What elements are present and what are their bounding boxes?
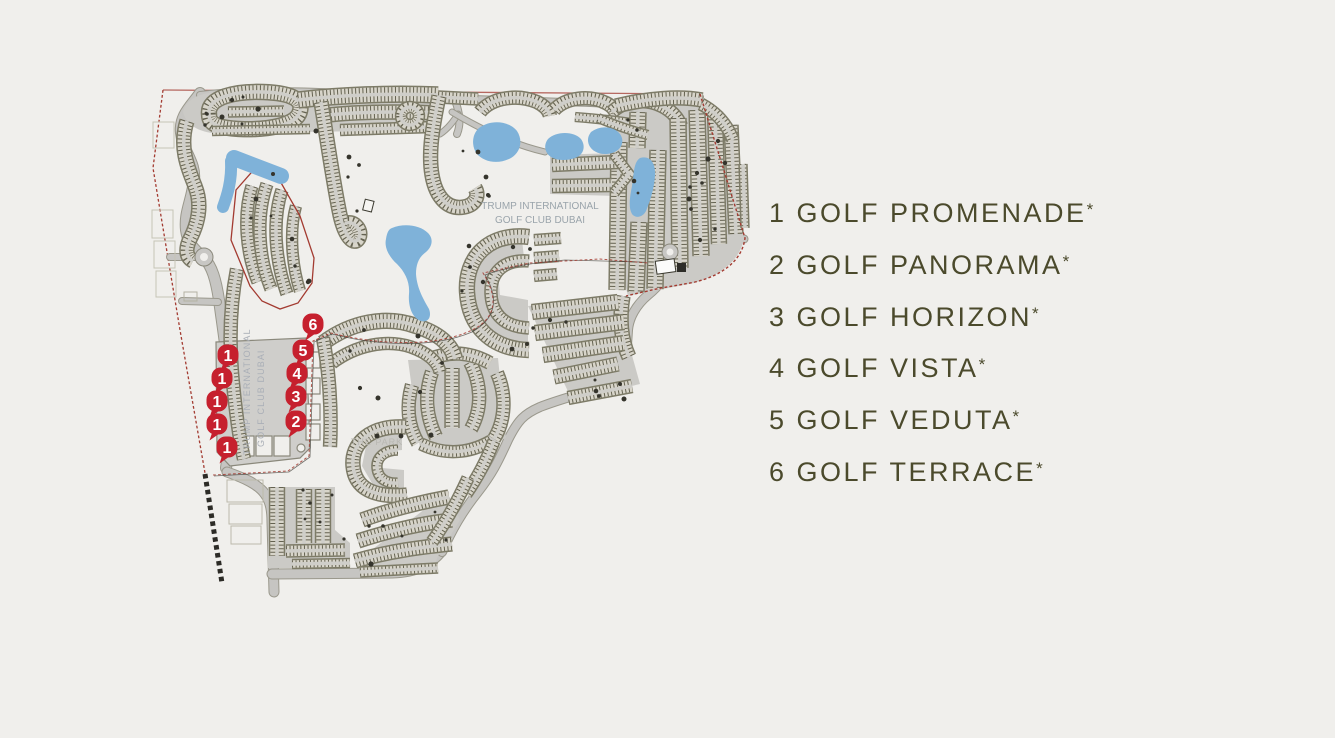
- svg-text:5: 5: [299, 343, 308, 360]
- svg-text:4: 4: [293, 366, 302, 383]
- svg-text:1: 1: [223, 440, 232, 457]
- svg-text:THE PARK: THE PARK: [351, 437, 403, 447]
- svg-text:3: 3: [292, 389, 301, 406]
- svg-text:6: 6: [309, 317, 318, 334]
- svg-text:GOLF CLUB DUBAI: GOLF CLUB DUBAI: [495, 215, 585, 226]
- svg-text:1: 1: [213, 394, 222, 411]
- svg-text:TRUMP INTERNATIONAL: TRUMP INTERNATIONAL: [481, 201, 599, 212]
- svg-text:1: 1: [213, 417, 222, 434]
- svg-text:GOLF CLUB DUBAI: GOLF CLUB DUBAI: [256, 349, 266, 447]
- svg-text:TRUMP INTERNATIONAL: TRUMP INTERNATIONAL: [242, 328, 252, 455]
- svg-text:2: 2: [292, 414, 301, 431]
- svg-text:1: 1: [218, 371, 227, 388]
- svg-text:1: 1: [224, 348, 233, 365]
